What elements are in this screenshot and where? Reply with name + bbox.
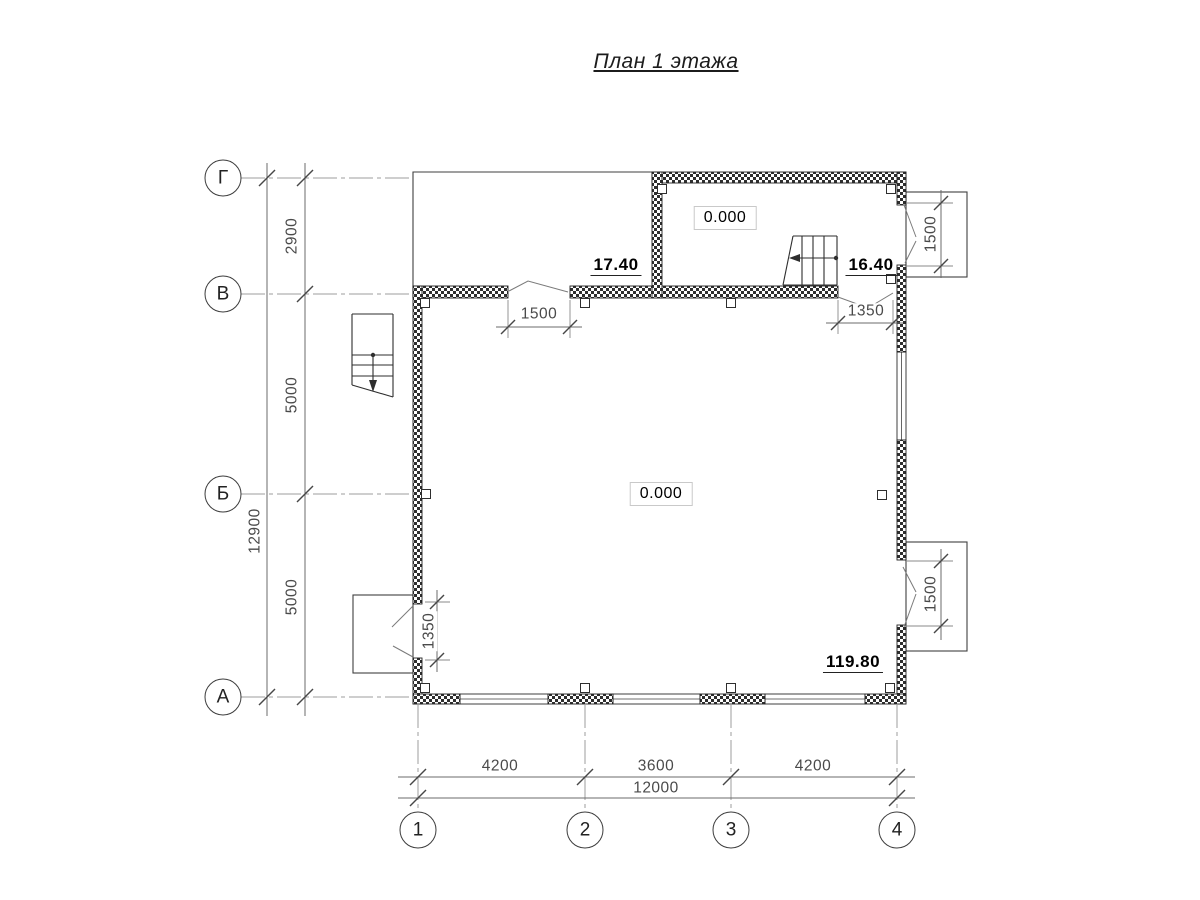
column-marker [886,184,896,194]
axis-col-3: 3 [713,812,750,849]
dim-left-wall-door: 1350 [421,611,437,651]
axis-row-v: В [205,276,242,313]
axis-col-4: 4 [879,812,916,849]
level-upper-room: 16.40 [845,256,896,276]
column-marker [420,683,430,693]
walls [413,172,906,704]
dim-top-wall-door: 1500 [519,306,559,322]
dim-bottom-seg-3: 4200 [793,758,833,774]
dim-right-bay-top: 1500 [923,214,939,254]
column-marker [580,298,590,308]
page-title: План 1 этажа [593,50,738,74]
axis-row-g: Г [205,160,242,197]
column-marker [657,184,667,194]
level-terrace: 17.40 [590,256,641,276]
grid-axis-lines [241,178,897,811]
column-marker [421,489,431,499]
floor-plan-canvas: План 1 этажа Г В Б А 1 2 3 4 2900 5000 5… [0,0,1200,900]
stairs-indoor [783,236,838,285]
dim-left-total: 12900 [247,506,263,556]
stairs-outdoor [352,314,393,397]
column-marker [420,298,430,308]
terrace-outline [413,172,657,298]
dim-left-seg-1: 2900 [284,216,300,256]
column-marker [885,683,895,693]
dim-right-bay-bottom: 1500 [923,574,939,614]
elevation-zero-upper: 0.000 [694,206,757,230]
column-marker [580,683,590,693]
axis-row-a: А [205,679,242,716]
floor-plan-drawing [0,0,1200,900]
dim-bottom-seg-2: 3600 [636,758,676,774]
dim-left-seg-2: 5000 [284,375,300,415]
porch-outline [353,595,413,673]
dim-top-right-door: 1350 [846,303,886,319]
dim-left-seg-3: 5000 [284,577,300,617]
column-marker [877,490,887,500]
dim-bottom-seg-1: 4200 [480,758,520,774]
column-marker [726,683,736,693]
elevation-zero-main: 0.000 [630,482,693,506]
axis-col-1: 1 [400,812,437,849]
column-marker [726,298,736,308]
level-bottom-right: 119.80 [823,653,883,673]
dim-bottom-total: 12000 [631,780,681,796]
axis-col-2: 2 [567,812,604,849]
axis-row-b: Б [205,476,242,513]
